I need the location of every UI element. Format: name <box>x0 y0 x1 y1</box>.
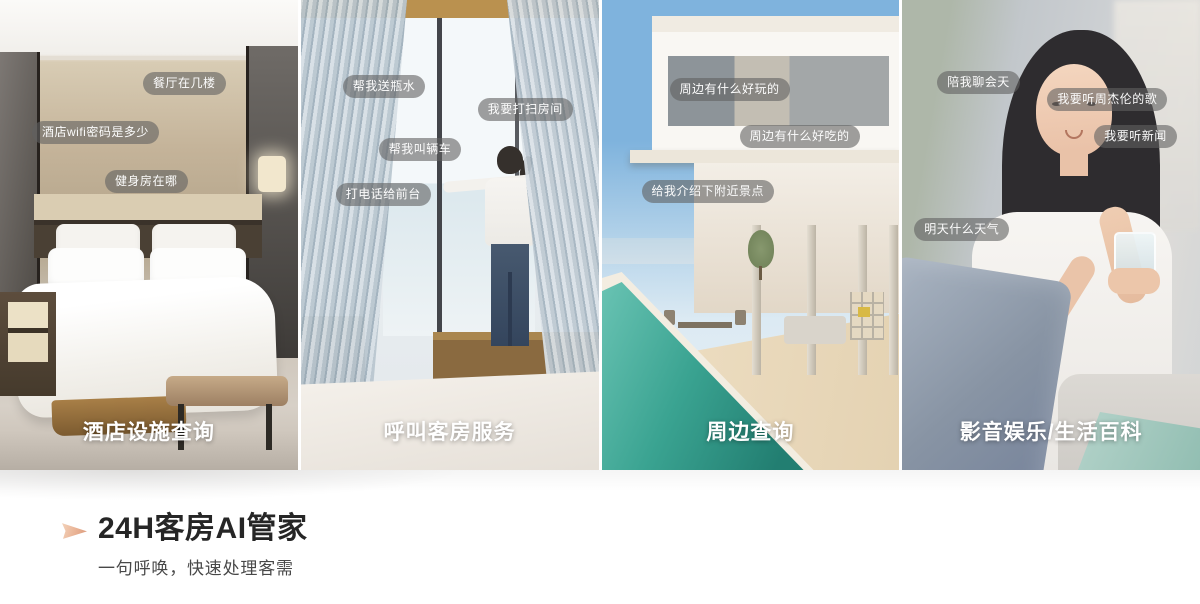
chat-bubble: 陪我聊会天 <box>937 71 1020 94</box>
chat-bubble: 明天什么天气 <box>914 218 1009 241</box>
chat-bubble: 给我介绍下附近景点 <box>642 180 775 203</box>
chat-bubble: 健身房在哪 <box>105 170 188 193</box>
photo-seaside-villa-pool <box>602 0 900 470</box>
feature-caption: 酒店设施查询 <box>0 416 298 446</box>
brand-block: 24H客房AI管家 一句呼唤，快速处理客需 <box>62 512 308 579</box>
chat-bubble: 餐厅在几楼 <box>143 72 226 95</box>
photo-hotel-bedroom <box>0 0 298 470</box>
section-title: 24H客房AI管家 <box>98 512 308 547</box>
promo-footer: 24H客房AI管家 一句呼唤，快速处理客需 <box>0 470 1200 601</box>
chat-bubble: 酒店wifi密码是多少 <box>32 121 159 144</box>
photo-guest-opening-curtains <box>301 0 599 470</box>
chat-bubble: 我要打扫房间 <box>478 98 573 121</box>
section-subtitle: 一句呼唤，快速处理客需 <box>98 554 308 579</box>
play-arrow-icon <box>62 522 87 540</box>
ai-butler-promo-page: 餐厅在几楼 酒店wifi密码是多少 健身房在哪 酒店设施查询 <box>0 0 1200 604</box>
feature-caption: 影音娱乐/生活百科 <box>902 416 1200 446</box>
feature-card-hotel-facilities: 餐厅在几楼 酒店wifi密码是多少 健身房在哪 酒店设施查询 <box>0 0 298 470</box>
chat-bubble: 帮我叫辆车 <box>379 138 462 161</box>
feature-panels-row: 餐厅在几楼 酒店wifi密码是多少 健身房在哪 酒店设施查询 <box>0 0 1200 470</box>
chat-bubble: 周边有什么好玩的 <box>670 78 790 101</box>
chat-bubble: 打电话给前台 <box>336 183 431 206</box>
chat-bubble: 我要听新闻 <box>1094 125 1177 148</box>
chat-bubble: 我要听周杰伦的歌 <box>1047 88 1167 111</box>
feature-caption: 周边查询 <box>602 416 900 446</box>
feature-card-room-service: 帮我送瓶水 我要打扫房间 帮我叫辆车 打电话给前台 呼叫客房服务 <box>301 0 599 470</box>
brand-text: 24H客房AI管家 一句呼唤，快速处理客需 <box>98 512 308 579</box>
feature-caption: 呼叫客房服务 <box>301 416 599 446</box>
feature-card-media-lifestyle: 陪我聊会天 我要听周杰伦的歌 我要听新闻 明天什么天气 影音娱乐/生活百科 <box>902 0 1200 470</box>
chat-bubble: 周边有什么好吃的 <box>740 125 860 148</box>
feature-card-nearby-query: 周边有什么好玩的 周边有什么好吃的 给我介绍下附近景点 周边查询 <box>602 0 900 470</box>
chat-bubble: 帮我送瓶水 <box>343 75 426 98</box>
